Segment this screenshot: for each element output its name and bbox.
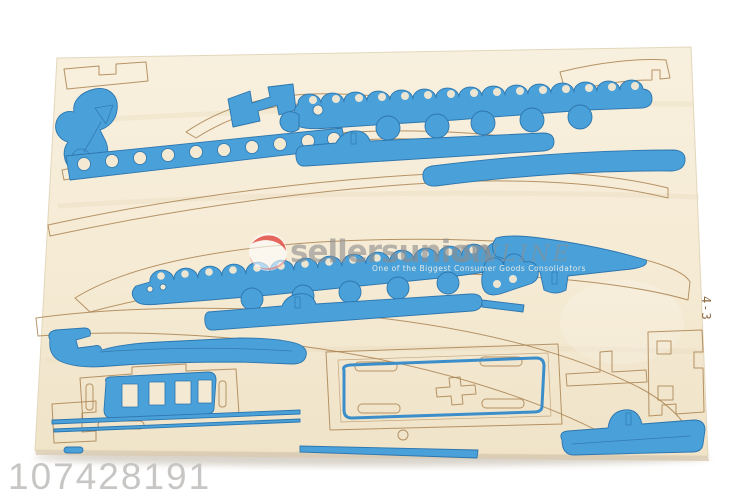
photo-canvas: sellersunion ONLINE One of the Biggest C…	[0, 0, 750, 500]
watermark-subtext: One of the Biggest Consumer Goods Consol…	[372, 264, 586, 273]
bow-curl	[313, 105, 323, 115]
product-id: 107428191	[8, 456, 211, 497]
lower-bow-curl-2	[160, 284, 166, 290]
watermark-logo	[249, 233, 287, 271]
light-glare	[560, 280, 684, 364]
lower-bow-curl	[147, 286, 153, 292]
bow-chip	[280, 112, 299, 132]
sheet-label: 4-3	[699, 296, 713, 321]
product-photo: sellersunion ONLINE One of the Biggest C…	[0, 0, 750, 500]
cabin-window-panel-piece	[104, 372, 216, 418]
